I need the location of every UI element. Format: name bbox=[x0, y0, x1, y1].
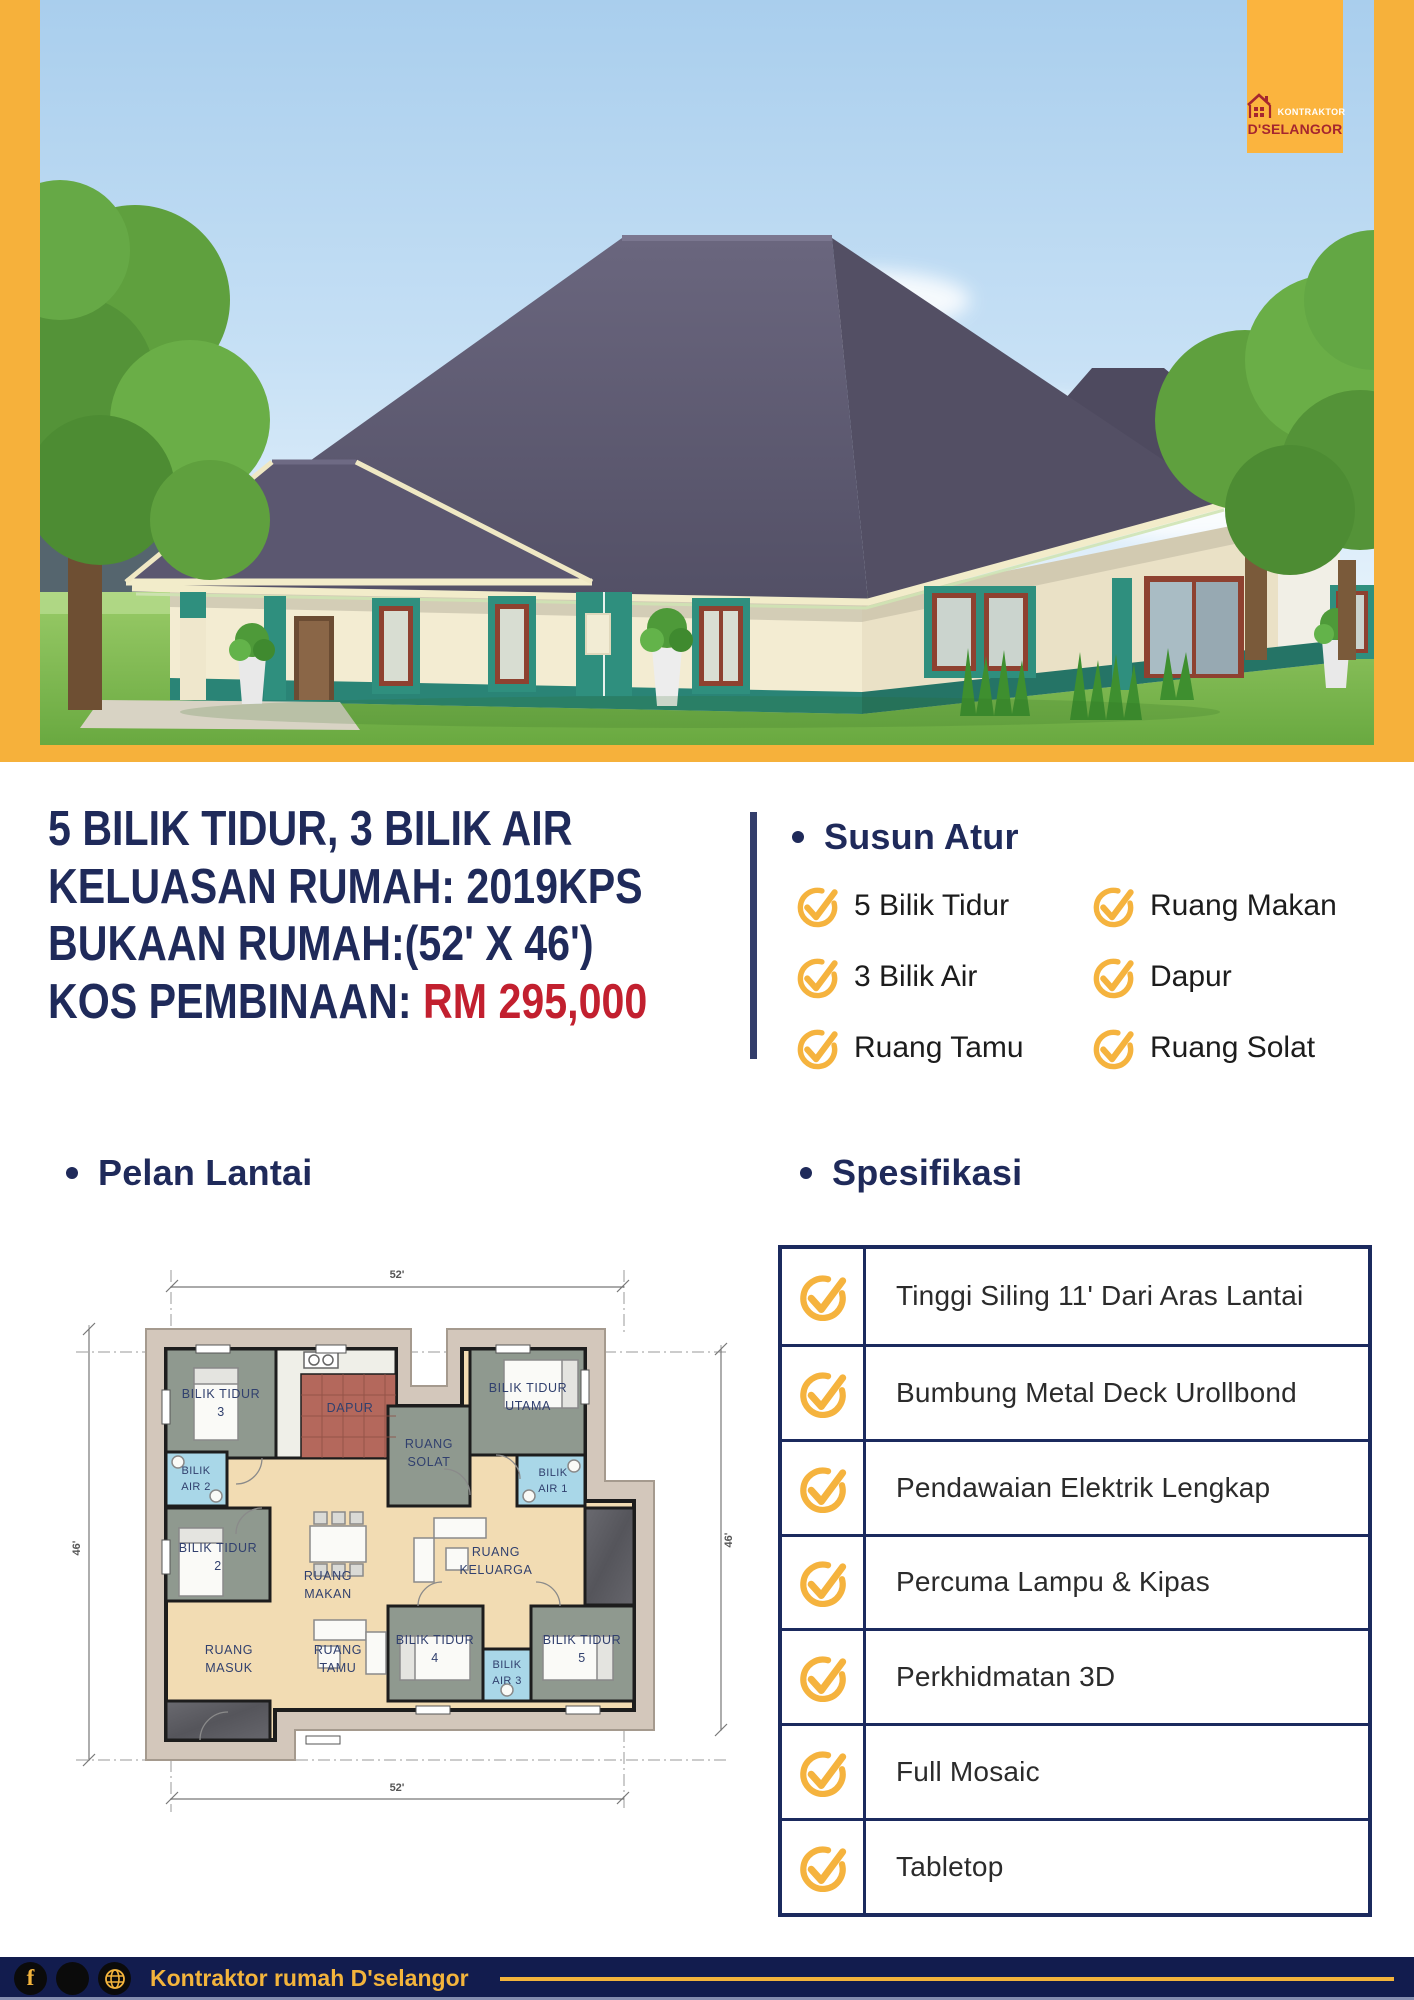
table-row: Tinggi Siling 11' Dari Aras Lantai bbox=[782, 1249, 1368, 1344]
dim-right: 46' bbox=[723, 1532, 735, 1547]
susun-atur-section: Susun Atur 5 Bilik Tidur Ruang Makan 3 B… bbox=[792, 816, 1404, 1071]
footer-brand-text: Kontraktor rumah D'selangor bbox=[150, 1965, 469, 1992]
list-item: Dapur bbox=[1090, 953, 1404, 1000]
spec-item-label: Perkhidmatan 3D bbox=[866, 1631, 1368, 1723]
front-door bbox=[299, 621, 329, 700]
table-row: Tabletop bbox=[782, 1818, 1368, 1913]
spec-item-label: Pendawaian Elektrik Lengkap bbox=[866, 1442, 1368, 1534]
check-icon bbox=[794, 882, 841, 929]
spesifikasi-title: Spesifikasi bbox=[832, 1152, 1022, 1194]
table-row: Pendawaian Elektrik Lengkap bbox=[782, 1439, 1368, 1534]
list-item: Ruang Makan bbox=[1090, 882, 1404, 929]
list-item: 5 Bilik Tidur bbox=[794, 882, 1090, 929]
footer-divider-line bbox=[500, 1977, 1394, 1981]
check-icon bbox=[796, 1840, 850, 1894]
headline-line2: KELUASAN RUMAH: 2019KPS bbox=[48, 859, 643, 917]
house-render-photo bbox=[40, 0, 1374, 745]
bullet-icon bbox=[800, 1167, 812, 1179]
list-item: 3 Bilik Air bbox=[794, 953, 1090, 1000]
headline-block: 5 BILIK TIDUR, 3 BILIK AIR KELUASAN RUMA… bbox=[48, 801, 760, 1031]
check-icon bbox=[1090, 953, 1137, 1000]
susun-item-label: Ruang Makan bbox=[1150, 889, 1337, 923]
spec-item-label: Tinggi Siling 11' Dari Aras Lantai bbox=[866, 1249, 1368, 1344]
table-row: Percuma Lampu & Kipas bbox=[782, 1534, 1368, 1629]
susun-item-label: Ruang Solat bbox=[1150, 1031, 1315, 1065]
check-icon bbox=[1090, 1024, 1137, 1071]
check-icon bbox=[1090, 882, 1137, 929]
susun-item-label: Dapur bbox=[1150, 960, 1232, 994]
hero-frame: KONTRAKTOR D'SELANGOR bbox=[0, 0, 1414, 762]
spec-item-label: Full Mosaic bbox=[866, 1726, 1368, 1818]
spesifikasi-table: Tinggi Siling 11' Dari Aras Lantai Bumbu… bbox=[778, 1245, 1372, 1917]
facebook-icon[interactable]: f bbox=[14, 1962, 47, 1995]
bullet-icon bbox=[66, 1167, 78, 1179]
logo-text-top: KONTRAKTOR bbox=[1278, 107, 1346, 117]
check-icon bbox=[796, 1366, 850, 1420]
table-row: Full Mosaic bbox=[782, 1723, 1368, 1818]
headline-cost-label: KOS PEMBINAAN: bbox=[48, 975, 412, 1029]
list-item: Ruang Tamu bbox=[794, 1024, 1090, 1071]
footer-bar: f Kontraktor rumah D'selangor bbox=[0, 1957, 1414, 2000]
check-icon bbox=[794, 1024, 841, 1071]
porch-marble-right bbox=[585, 1508, 634, 1605]
floor-plan: BILIK TIDUR3 DAPUR RUANGSOLAT BILIK TIDU… bbox=[66, 1240, 740, 1920]
check-icon bbox=[796, 1555, 850, 1609]
pelan-lantai-heading: Pelan Lantai bbox=[66, 1152, 312, 1194]
spec-item-label: Percuma Lampu & Kipas bbox=[866, 1537, 1368, 1629]
susun-item-label: 3 Bilik Air bbox=[854, 960, 977, 994]
headline-price: RM 295,000 bbox=[423, 975, 647, 1029]
dim-bottom: 52' bbox=[390, 1782, 405, 1794]
list-item: Ruang Solat bbox=[1090, 1024, 1404, 1071]
check-icon bbox=[796, 1269, 850, 1323]
social-circle-icon[interactable] bbox=[56, 1962, 89, 1995]
logo-text-bottom: D'SELANGOR bbox=[1248, 121, 1343, 137]
brand-logo-tab: KONTRAKTOR D'SELANGOR bbox=[1247, 0, 1343, 153]
spec-item-label: Bumbung Metal Deck Urollbond bbox=[866, 1347, 1368, 1439]
house-scene bbox=[40, 0, 1374, 745]
house-logo-icon bbox=[1245, 92, 1275, 120]
bullet-icon bbox=[792, 831, 804, 843]
dim-left: 46' bbox=[71, 1540, 83, 1555]
dim-top: 52' bbox=[390, 1269, 405, 1281]
room-label: DAPUR bbox=[327, 1401, 374, 1415]
globe-icon[interactable] bbox=[98, 1962, 131, 1995]
susun-atur-title: Susun Atur bbox=[824, 816, 1019, 858]
pelan-lantai-title: Pelan Lantai bbox=[98, 1152, 312, 1194]
sliding-door bbox=[1144, 576, 1244, 678]
right-window-pair bbox=[924, 586, 1036, 678]
headline-line3: BUKAAN RUMAH:(52' X 46') bbox=[48, 916, 594, 974]
small-window bbox=[586, 614, 610, 654]
check-icon bbox=[796, 1461, 850, 1515]
porch-marble-bottom bbox=[166, 1701, 270, 1740]
table-row: Perkhidmatan 3D bbox=[782, 1628, 1368, 1723]
spesifikasi-heading: Spesifikasi bbox=[800, 1152, 1022, 1194]
check-icon bbox=[796, 1650, 850, 1704]
check-icon bbox=[796, 1745, 850, 1799]
susun-item-label: 5 Bilik Tidur bbox=[854, 889, 1009, 923]
section-divider bbox=[750, 812, 757, 1059]
check-icon bbox=[794, 953, 841, 1000]
table-row: Bumbung Metal Deck Urollbond bbox=[782, 1344, 1368, 1439]
headline-line1: 5 BILIK TIDUR, 3 BILIK AIR bbox=[48, 801, 572, 859]
spec-item-label: Tabletop bbox=[866, 1821, 1368, 1913]
susun-item-label: Ruang Tamu bbox=[854, 1031, 1024, 1065]
